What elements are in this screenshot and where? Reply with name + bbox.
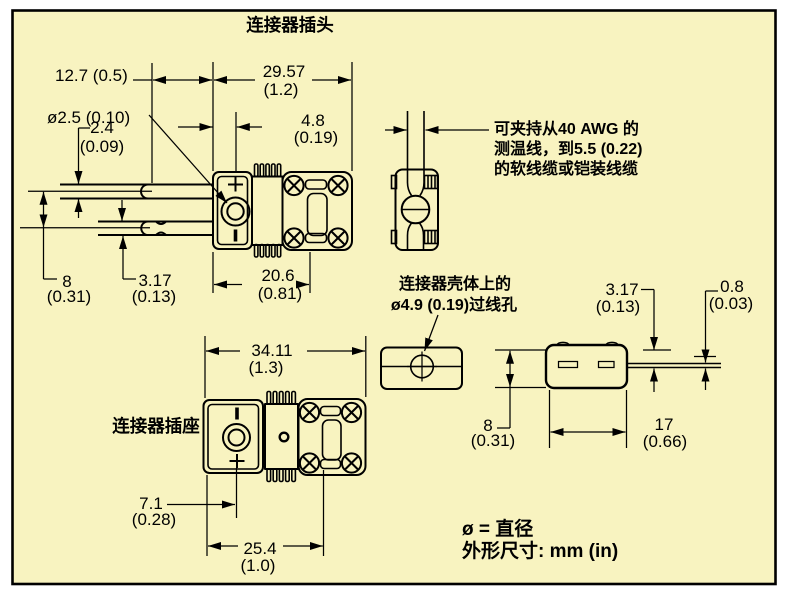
dim-clamp-section-length-in: (0.81) <box>258 284 302 303</box>
dim-side-height-in: (0.31) <box>471 431 515 450</box>
clamp-note-line1: 可夹持从40 AWG 的 <box>494 119 639 138</box>
grommet-note-line1: 连接器壳体上的 <box>399 274 511 293</box>
connector-dimension-diagram: 连接器插头 12.7 (0.5) 29.57 (1.2) ø2.5 (0.10)… <box>0 0 790 596</box>
dim-blade-thickness-in: (0.03) <box>709 294 753 313</box>
plug-title: 连接器插头 <box>246 15 334 35</box>
dim-side-length-in: (0.66) <box>643 432 687 451</box>
dim-plus-pin-thickness-in: (0.09) <box>80 137 124 156</box>
dim-pin-spacing-in: (0.31) <box>47 287 91 306</box>
diagram-page: 连接器插头 12.7 (0.5) 29.57 (1.2) ø2.5 (0.10)… <box>0 0 790 596</box>
clamp-note-line2: 测温线，到5.5 (0.22) <box>494 139 643 158</box>
dim-socket-length-in: (1.3) <box>249 358 284 377</box>
dim-pin-hole-diameter: ø2.5 (0.10) <box>47 108 130 127</box>
dim-face-to-center-in: (0.19) <box>294 128 338 147</box>
clamp-note-line3: 的软线缆或铠装线缆 <box>494 159 638 178</box>
dim-socket-center-offset-in: (0.28) <box>132 510 176 529</box>
dim-clamp-section-length-mm: 20.6 <box>261 266 294 285</box>
grommet-note-line2: ø4.9 (0.19)过线孔 <box>391 295 517 314</box>
dim-side-top-to-blade-in: (0.13) <box>596 297 640 316</box>
dim-minus-pin-thickness-in: (0.13) <box>132 287 176 306</box>
dim-socket-screw-span-in: (1.0) <box>241 556 276 575</box>
dim-plug-body-length-mm: 29.57 <box>263 62 306 81</box>
dim-plug-pin-length: 12.7 (0.5) <box>55 66 128 85</box>
legend-diameter: ø = 直径 <box>462 517 533 540</box>
dim-plug-body-length-in: (1.2) <box>264 80 299 99</box>
dim-plus-pin-thickness-mm: 2.4 <box>90 118 114 137</box>
legend-units: 外形尺寸: mm (in) <box>462 539 618 562</box>
socket-title: 连接器插座 <box>112 416 200 436</box>
